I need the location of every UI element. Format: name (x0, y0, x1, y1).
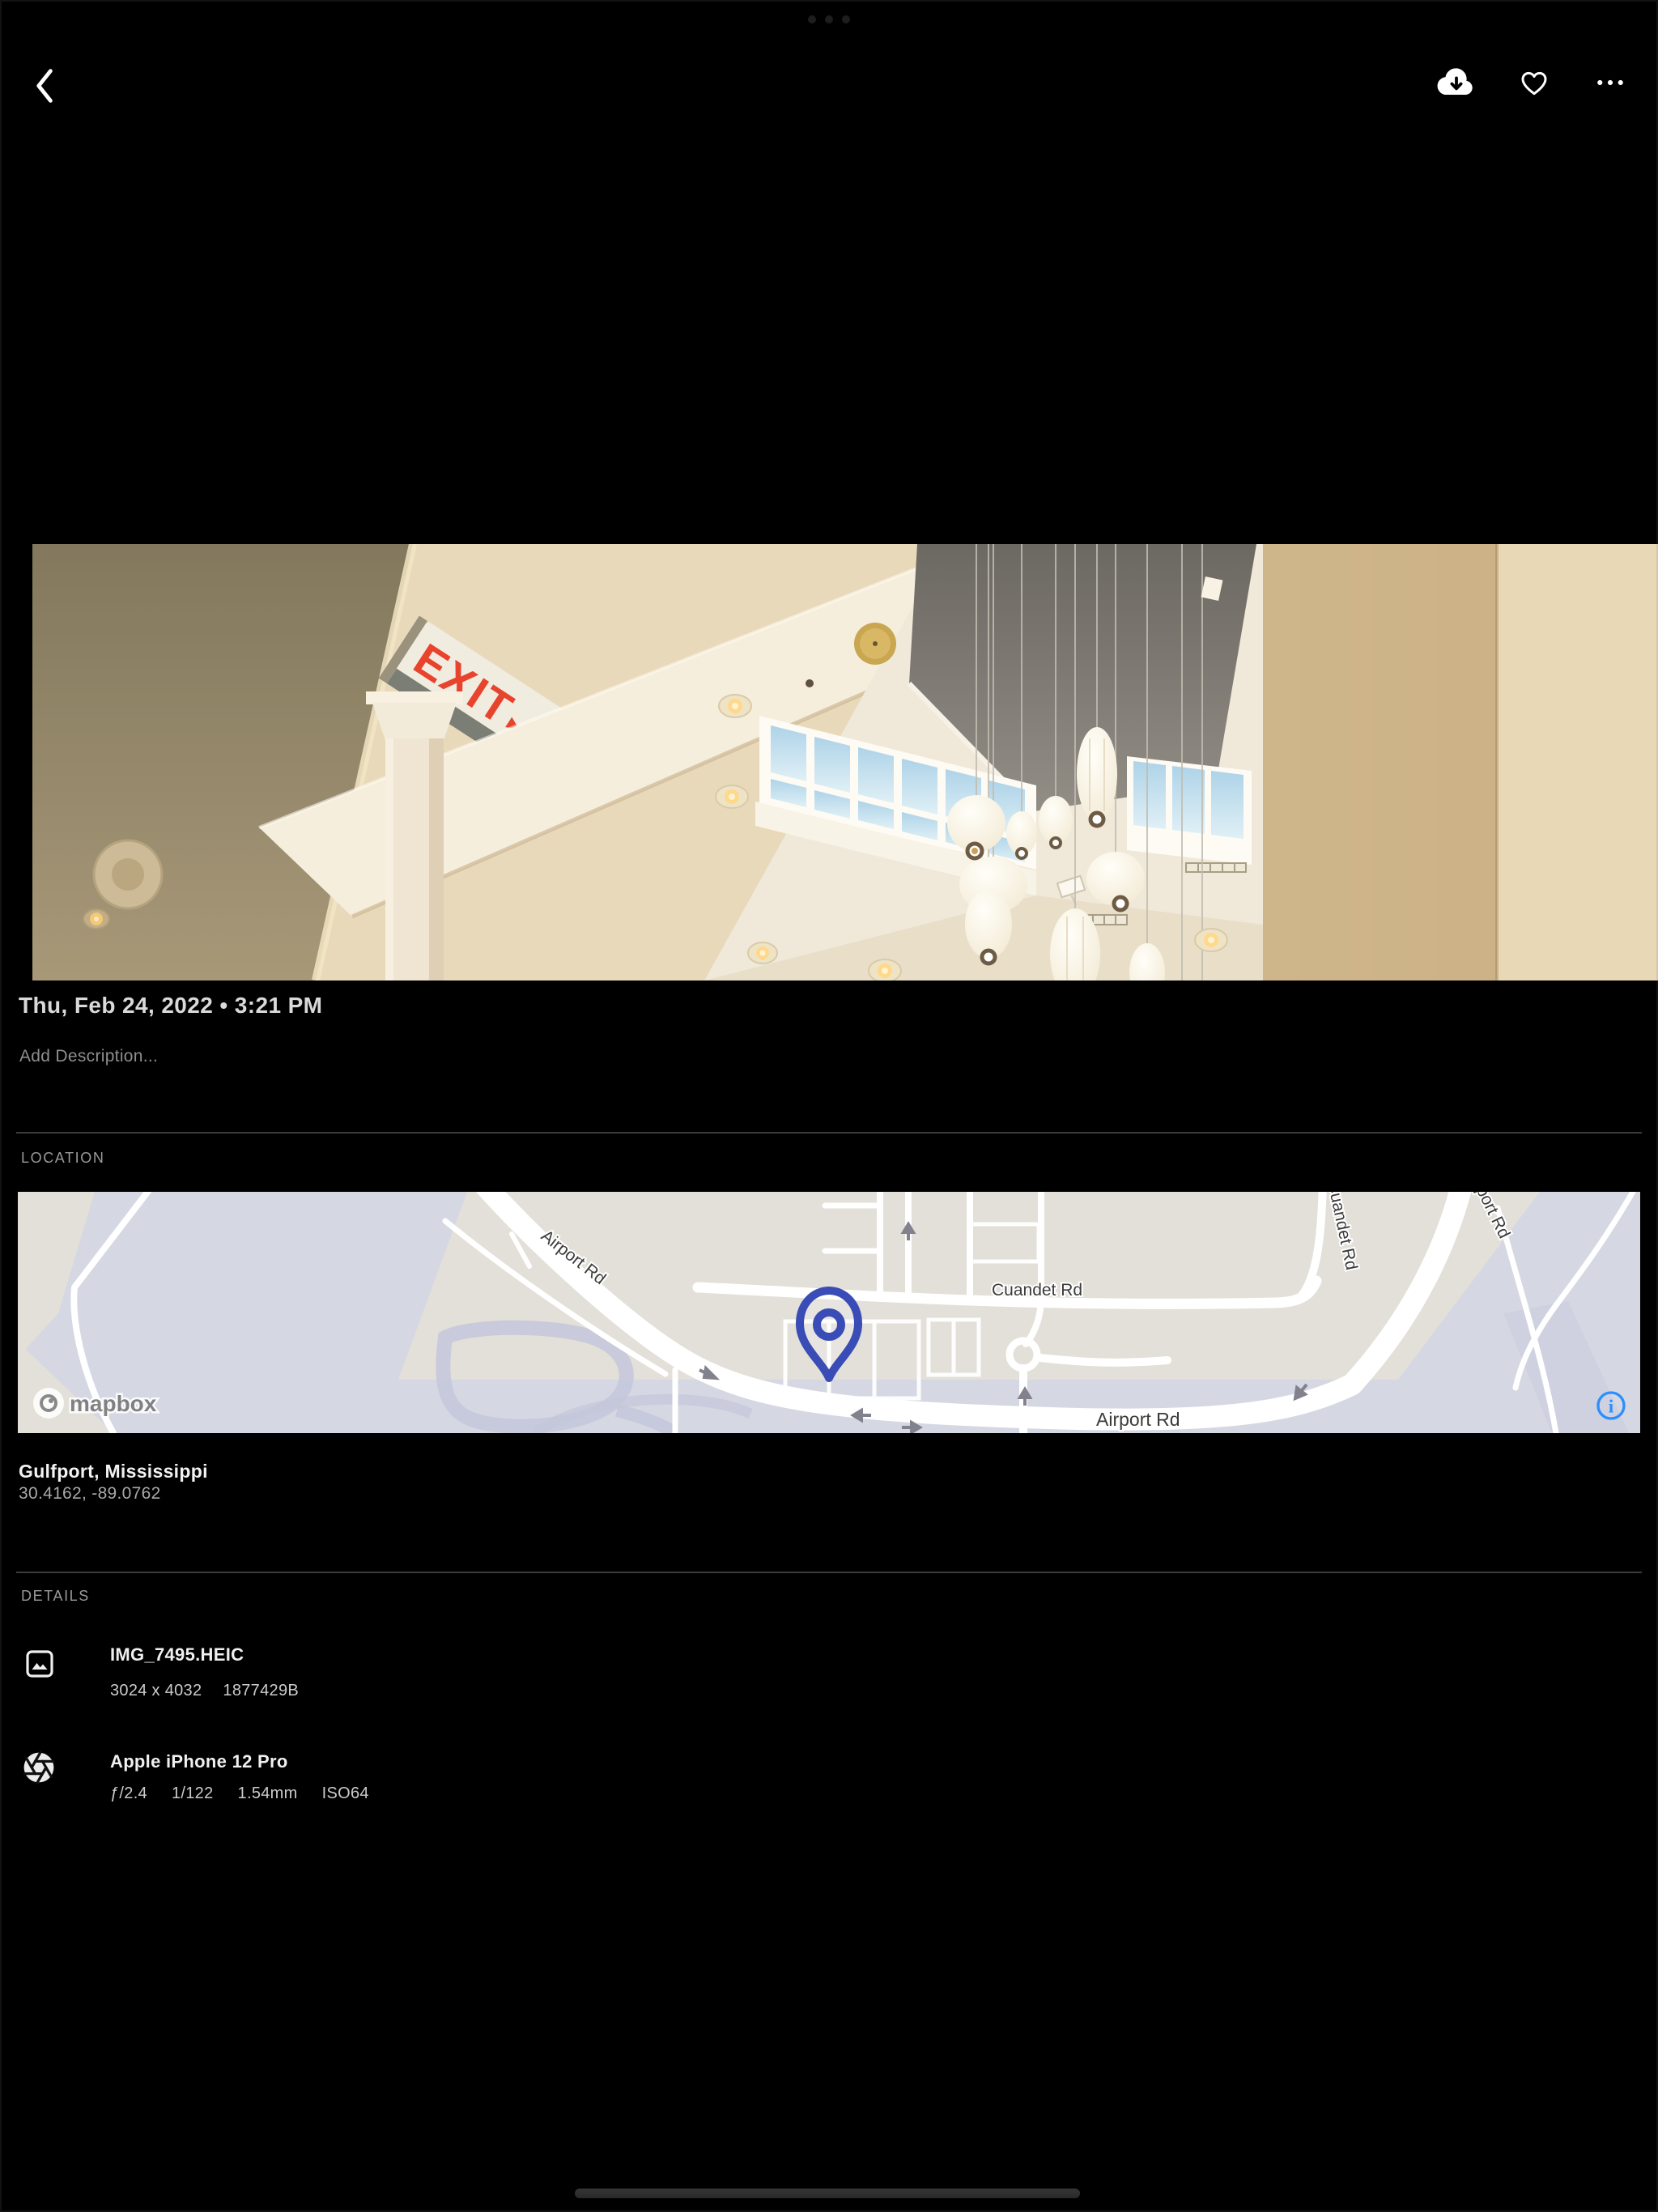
location-place: Gulfport, Mississippi (19, 1461, 208, 1482)
chevron-left-icon (28, 97, 63, 109)
sprinkler-head (806, 679, 814, 687)
photo-scene: EXIT ▸ (32, 544, 1658, 981)
toolbar (0, 0, 1658, 172)
ellipsis-icon (1592, 89, 1628, 101)
home-indicator[interactable] (575, 2189, 1080, 2198)
mapbox-wordmark: mapbox (70, 1391, 157, 1416)
file-dimensions: 3024 x 4032 (110, 1682, 202, 1699)
divider (16, 1132, 1642, 1134)
info-icon: i (1595, 1412, 1627, 1424)
details-section-label: DETAILS (21, 1588, 90, 1605)
camera-focal-length: 1.54mm (238, 1784, 298, 1802)
map-scene: Airport Rd Cuandet Rd Airport Rd Airport… (18, 1192, 1640, 1433)
file-size: 1877429B (223, 1682, 299, 1699)
download-button[interactable] (1437, 66, 1476, 99)
file-name: IMG_7495.HEIC (110, 1644, 244, 1665)
image-file-icon (23, 1648, 56, 1680)
camera-shutter: 1/122 (172, 1784, 214, 1802)
screen-border (0, 0, 1658, 2212)
back-button[interactable] (28, 65, 63, 107)
camera-iso: ISO64 (322, 1784, 369, 1802)
cloud-download-icon (1437, 89, 1476, 101)
road-label-cuandet: Cuandet Rd (992, 1281, 1082, 1300)
aperture-icon (20, 1749, 57, 1786)
camera-name: Apple iPhone 12 Pro (110, 1751, 288, 1772)
divider (16, 1572, 1642, 1573)
location-section-label: LOCATION (21, 1150, 104, 1167)
camera-settings: ƒ/2.41/1221.54mmISO64 (110, 1784, 369, 1803)
svg-text:i: i (1609, 1396, 1614, 1417)
description-placeholder[interactable]: Add Description... (19, 1047, 158, 1066)
capture-datetime: Thu, Feb 24, 2022 • 3:21 PM (19, 993, 322, 1019)
more-button[interactable] (1592, 66, 1628, 99)
mapbox-attribution[interactable]: mapbox (33, 1388, 157, 1419)
camera-aperture: ƒ/2.4 (110, 1784, 147, 1802)
favorite-button[interactable] (1518, 67, 1550, 98)
heart-icon (1518, 88, 1550, 100)
map-info-button[interactable]: i (1595, 1389, 1627, 1422)
road-label-airport-south: Airport Rd (1096, 1409, 1180, 1430)
location-coordinates: 30.4162, -89.0762 (19, 1484, 161, 1504)
ceiling-speaker (854, 623, 896, 665)
photo-viewer[interactable]: EXIT ▸ (32, 544, 1658, 981)
location-map[interactable]: Airport Rd Cuandet Rd Airport Rd Airport… (18, 1192, 1640, 1433)
smoke-detector (94, 840, 162, 908)
file-info: 3024 x 40321877429B (110, 1682, 299, 1700)
